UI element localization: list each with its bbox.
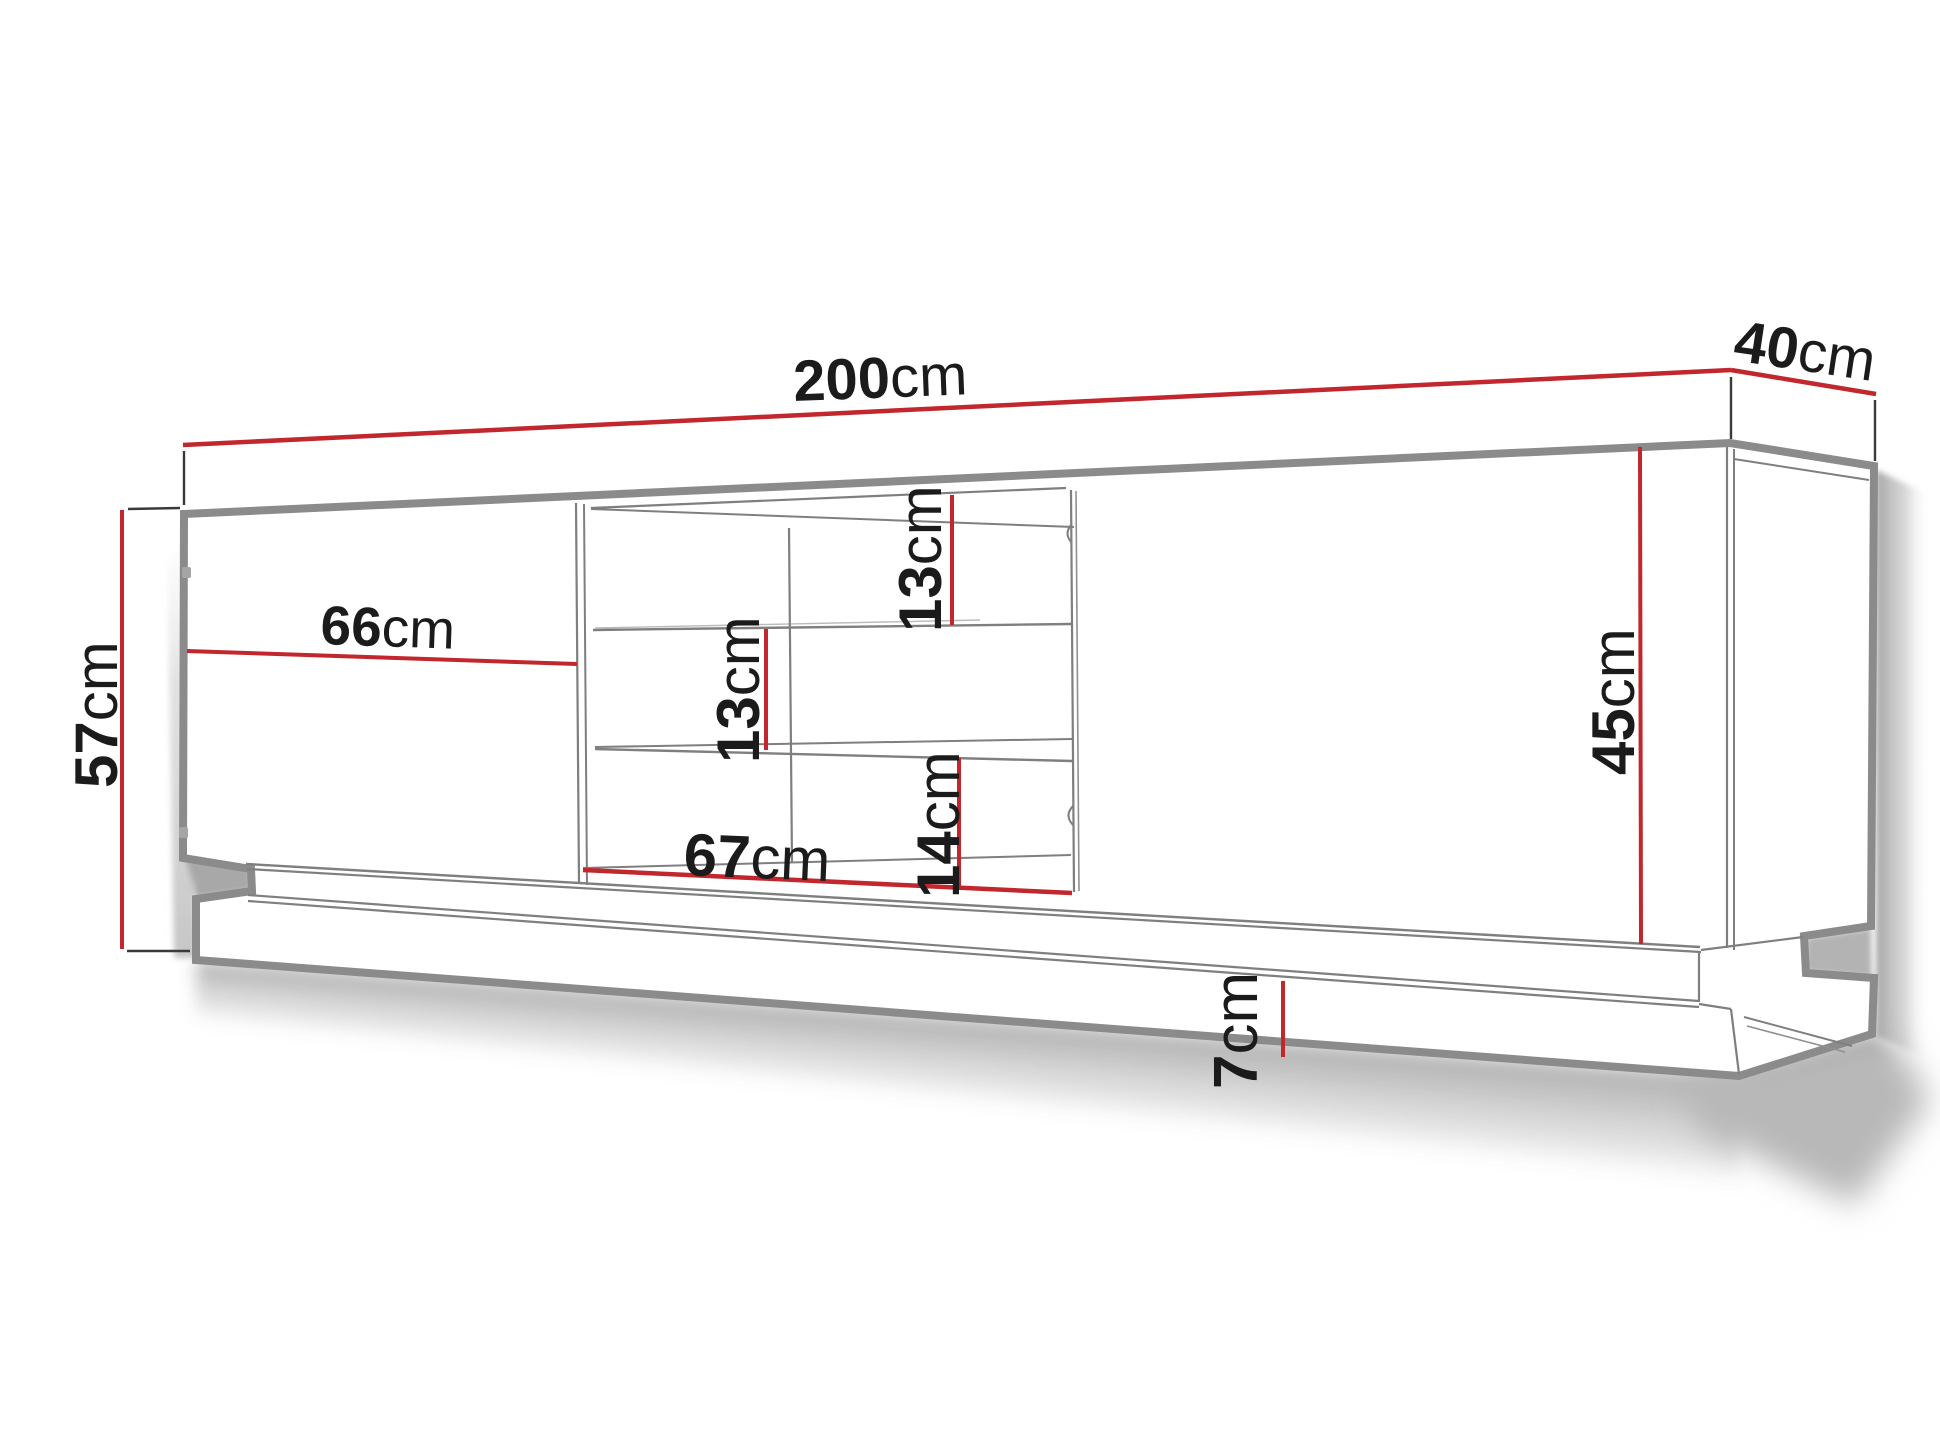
svg-text:13cm: 13cm [705, 616, 772, 763]
svg-text:66cm: 66cm [320, 594, 457, 661]
svg-text:200cm: 200cm [792, 342, 968, 414]
svg-text:14cm: 14cm [905, 751, 972, 898]
svg-text:67cm: 67cm [682, 821, 831, 894]
svg-text:7cm: 7cm [1202, 972, 1271, 1089]
svg-text:45cm: 45cm [1580, 628, 1647, 775]
svg-text:13cm: 13cm [887, 485, 954, 632]
svg-text:57cm: 57cm [63, 641, 130, 788]
